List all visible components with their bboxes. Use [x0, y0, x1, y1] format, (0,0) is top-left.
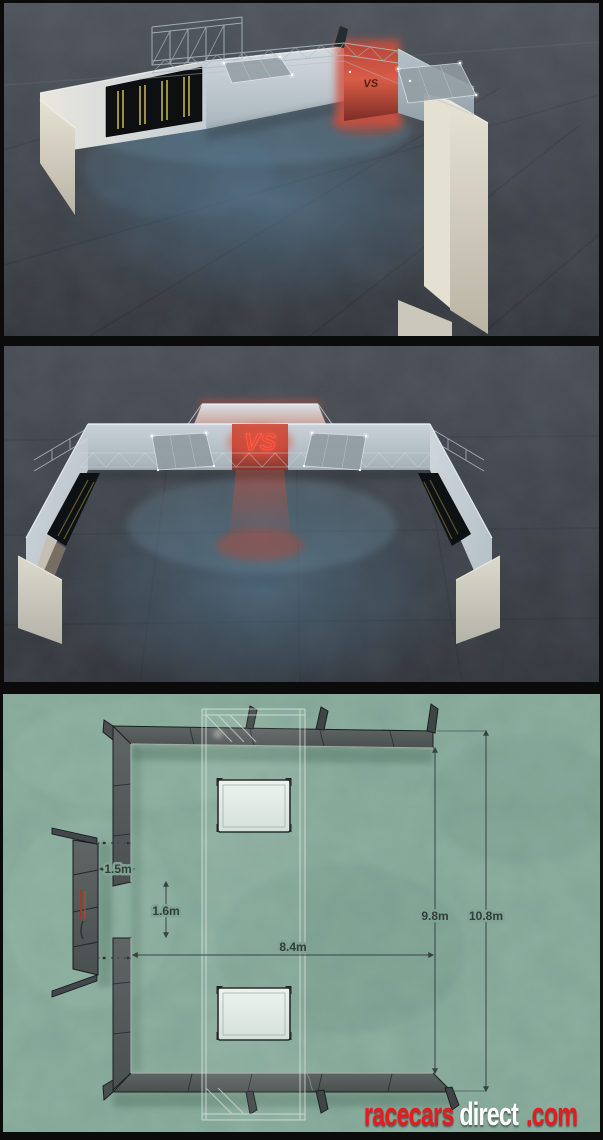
brand-racecars: racecars: [364, 1095, 454, 1132]
left-wall-lower: [113, 938, 131, 1090]
floorplan-svg: 1.5m 1.6m 8.4m 9.8m 10.8m racecars direc…: [0, 694, 603, 1140]
truss-footprint: [202, 709, 305, 1120]
brand-logo: racecars direct .com: [364, 1095, 577, 1132]
dim-label-10-8m: 10.8m: [469, 909, 503, 923]
floorplan-panel: 1.5m 1.6m 8.4m 9.8m 10.8m racecars direc…: [0, 694, 603, 1140]
red-light-column: [228, 470, 292, 550]
dim-label-1-5m: 1.5m: [104, 862, 131, 876]
right-front-wall-inner: [424, 94, 450, 308]
right-front-wall-outer: [450, 101, 488, 334]
dim-label-9-8m: 9.8m: [421, 909, 448, 923]
brand-direct: direct: [459, 1095, 519, 1132]
render-front-svg: VS: [0, 340, 603, 694]
render-front-panel: VS: [0, 340, 603, 694]
dim-label-1-6m: 1.6m: [152, 904, 179, 918]
listing-image: VS: [0, 0, 603, 1140]
vs-logo: VS: [244, 429, 276, 456]
brand-com: .com: [526, 1095, 577, 1132]
svg-text:racecars direct: racecars direct .com: [364, 1095, 577, 1132]
vs-logo-faint: VS: [363, 78, 379, 91]
render-top-panel: VS: [0, 0, 603, 340]
render-top-svg: VS: [0, 0, 603, 340]
dim-label-8-4m: 8.4m: [279, 940, 306, 954]
header-banner: [194, 404, 326, 424]
